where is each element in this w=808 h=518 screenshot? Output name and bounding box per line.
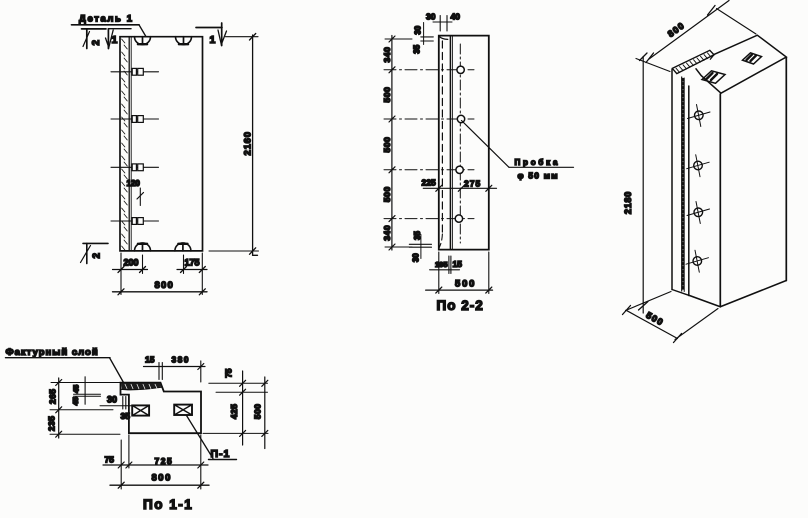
svg-text:φ 50 мм: φ 50 мм xyxy=(518,171,559,181)
svg-text:800: 800 xyxy=(152,472,172,483)
svg-text:Пробка: Пробка xyxy=(515,158,561,167)
svg-text:340: 340 xyxy=(382,225,392,241)
svg-text:500: 500 xyxy=(382,87,392,103)
svg-text:225: 225 xyxy=(422,178,436,188)
svg-text:По 1-1: По 1-1 xyxy=(143,497,193,512)
svg-text:500: 500 xyxy=(382,186,392,202)
svg-text:Фактурный слой: Фактурный слой xyxy=(6,347,99,358)
svg-text:30: 30 xyxy=(107,394,117,404)
svg-text:425: 425 xyxy=(229,403,239,419)
svg-text:75: 75 xyxy=(105,454,115,464)
svg-text:40: 40 xyxy=(451,12,461,22)
svg-text:45: 45 xyxy=(72,385,81,393)
svg-text:15: 15 xyxy=(145,355,155,365)
svg-text:35: 35 xyxy=(413,231,422,240)
svg-text:380: 380 xyxy=(172,355,190,365)
svg-text:35: 35 xyxy=(413,44,422,53)
svg-text:75: 75 xyxy=(224,368,234,378)
svg-text:2: 2 xyxy=(91,40,102,46)
svg-text:800: 800 xyxy=(155,280,174,291)
svg-text:175: 175 xyxy=(185,258,200,268)
svg-text:П-1: П-1 xyxy=(211,448,231,460)
svg-text:По 2-2: По 2-2 xyxy=(437,298,484,313)
svg-text:30: 30 xyxy=(412,253,421,262)
svg-text:235: 235 xyxy=(47,415,57,431)
svg-text:15: 15 xyxy=(453,259,463,269)
svg-text:340: 340 xyxy=(382,47,392,63)
svg-text:500: 500 xyxy=(253,403,263,419)
svg-text:1: 1 xyxy=(210,34,216,46)
svg-text:500: 500 xyxy=(644,310,665,328)
svg-text:2180: 2180 xyxy=(623,191,633,214)
svg-text:800: 800 xyxy=(666,20,687,39)
svg-text:45: 45 xyxy=(71,397,80,405)
svg-text:120: 120 xyxy=(127,179,141,188)
svg-text:725: 725 xyxy=(155,456,174,466)
svg-text:500: 500 xyxy=(455,279,476,290)
svg-text:35: 35 xyxy=(121,411,131,421)
svg-text:265: 265 xyxy=(48,388,58,404)
svg-text:1: 1 xyxy=(112,34,118,46)
svg-text:275: 275 xyxy=(464,179,481,189)
svg-text:500: 500 xyxy=(382,137,392,153)
svg-text:30: 30 xyxy=(426,11,436,21)
svg-text:Деталь 1: Деталь 1 xyxy=(79,14,134,25)
svg-text:30: 30 xyxy=(414,25,423,34)
svg-text:2: 2 xyxy=(92,253,103,259)
svg-text:2160: 2160 xyxy=(243,131,254,155)
svg-text:200: 200 xyxy=(124,258,139,268)
svg-text:105: 105 xyxy=(435,260,448,269)
